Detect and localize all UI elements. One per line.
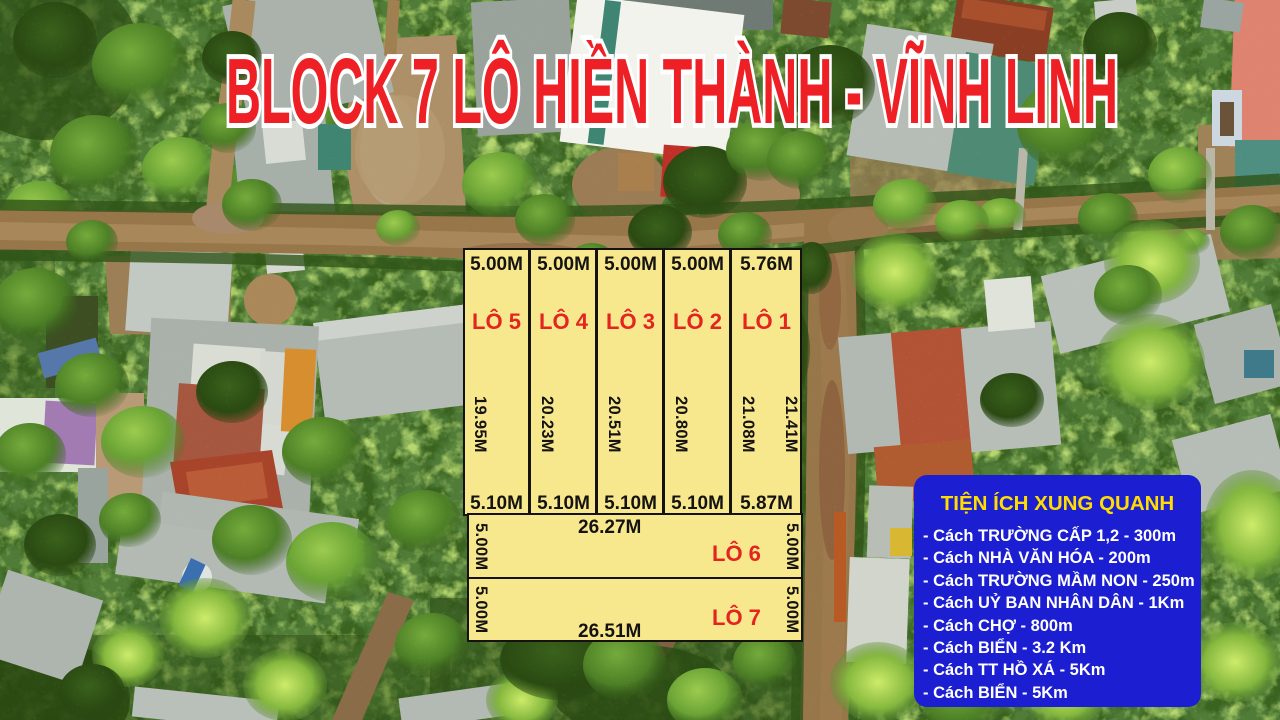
svg-text:BLOCK 7 LÔ HIỀN THÀNH - VĨNH L: BLOCK 7 LÔ HIỀN THÀNH - VĨNH LINH bbox=[226, 39, 1118, 143]
